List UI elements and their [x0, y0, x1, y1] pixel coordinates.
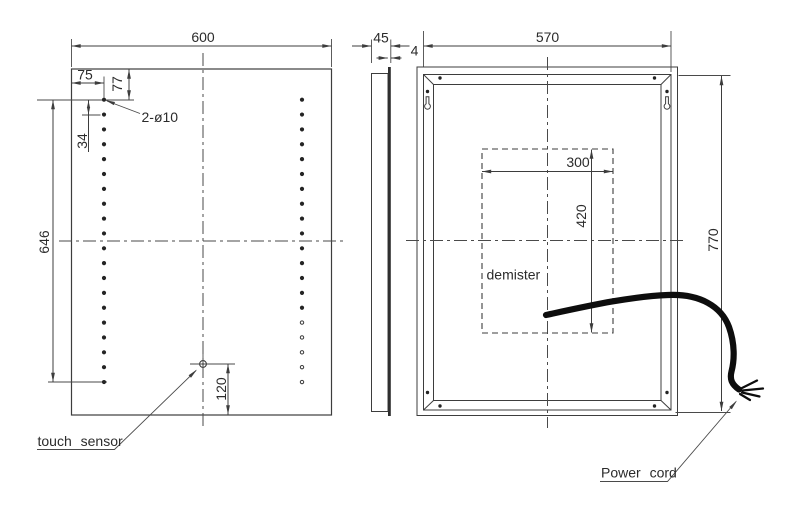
led-dot	[102, 276, 106, 280]
led-dot	[102, 246, 106, 250]
screw-dot	[653, 404, 656, 407]
hole-callout	[105, 100, 140, 114]
keyhole-hanger-right-icon	[664, 97, 670, 109]
touch-sensor-label: touch sensor	[38, 433, 123, 449]
dim-text-120: 120	[213, 377, 229, 401]
dim-text-34: 34	[74, 133, 90, 149]
demister-label: demister	[487, 267, 541, 283]
led-dot	[102, 291, 106, 295]
led-hole-hollow	[300, 351, 303, 354]
side-glass	[388, 67, 391, 416]
led-dot	[102, 98, 106, 102]
led-dot	[102, 350, 106, 354]
led-hole-hollow	[300, 380, 303, 383]
leader-arrow	[105, 100, 115, 105]
led-hole-hollow	[300, 321, 303, 324]
screw-dot	[426, 391, 429, 394]
side-frame-outline	[372, 74, 389, 412]
led-dot	[300, 142, 304, 146]
dim-text-45: 45	[373, 30, 389, 46]
dim-text-420: 420	[573, 204, 589, 228]
led-dot	[102, 187, 106, 191]
power-cord	[546, 295, 763, 400]
led-dot	[102, 112, 106, 116]
keyhole-hanger-left-icon	[425, 97, 431, 109]
screw-dot	[653, 76, 656, 79]
led-dot	[300, 202, 304, 206]
led-dot	[300, 157, 304, 161]
led-dot	[300, 112, 304, 116]
rear-centerlines	[406, 57, 686, 428]
side-view: 45 4	[352, 30, 419, 417]
led-dot	[102, 365, 106, 369]
dim-text-600: 600	[191, 29, 215, 45]
led-dot	[102, 142, 106, 146]
dim-text-75: 75	[77, 67, 93, 83]
led-dot	[102, 380, 106, 384]
led-dot	[300, 172, 304, 176]
led-dot	[300, 261, 304, 265]
front-dimension-lines	[53, 46, 332, 415]
led-dot	[300, 187, 304, 191]
led-dot	[300, 127, 304, 131]
hole-callout-text: 2-ø10	[142, 109, 179, 125]
led-dot	[102, 321, 106, 325]
led-dot	[102, 127, 106, 131]
led-dot	[300, 276, 304, 280]
power-cord-label: Power cord	[601, 465, 677, 481]
dim-text-4: 4	[411, 43, 419, 59]
led-dot	[300, 291, 304, 295]
technical-drawing: 600 75 77 34 646 120 2-ø10 touch sensor …	[0, 0, 800, 513]
screw-dot	[665, 90, 668, 93]
screw-dot	[426, 90, 429, 93]
led-dot	[102, 216, 106, 220]
led-dot	[300, 98, 304, 102]
led-dot	[102, 157, 106, 161]
dim-text-570: 570	[536, 29, 560, 45]
led-hole-hollow	[300, 336, 303, 339]
dim-text-300: 300	[566, 154, 590, 170]
led-dot	[102, 261, 106, 265]
front-view: 600 75 77 34 646 120 2-ø10 touch sensor	[36, 29, 344, 450]
dim-text-77: 77	[109, 76, 125, 92]
front-extension-lines	[37, 39, 332, 382]
led-dot	[102, 231, 106, 235]
mirror-outline	[72, 69, 332, 415]
led-dot	[300, 306, 304, 310]
screw-dot	[665, 391, 668, 394]
led-dot	[102, 202, 106, 206]
side-dimension-lines	[352, 46, 410, 58]
led-dot	[102, 306, 106, 310]
screw-dot	[438, 404, 441, 407]
led-dot	[102, 335, 106, 339]
front-centerlines	[59, 53, 344, 428]
led-dot	[300, 216, 304, 220]
dim-text-646: 646	[36, 230, 52, 254]
touch-sensor-icon	[200, 354, 207, 377]
led-hole-hollow	[300, 365, 303, 368]
drawing-page: 600 75 77 34 646 120 2-ø10 touch sensor …	[0, 0, 800, 513]
led-dot	[102, 172, 106, 176]
screw-dot	[438, 76, 441, 79]
dim-text-770: 770	[705, 228, 721, 252]
led-dot	[300, 231, 304, 235]
rear-view: 570 770 300 420 demister Power cord	[406, 29, 763, 482]
led-dot	[300, 246, 304, 250]
